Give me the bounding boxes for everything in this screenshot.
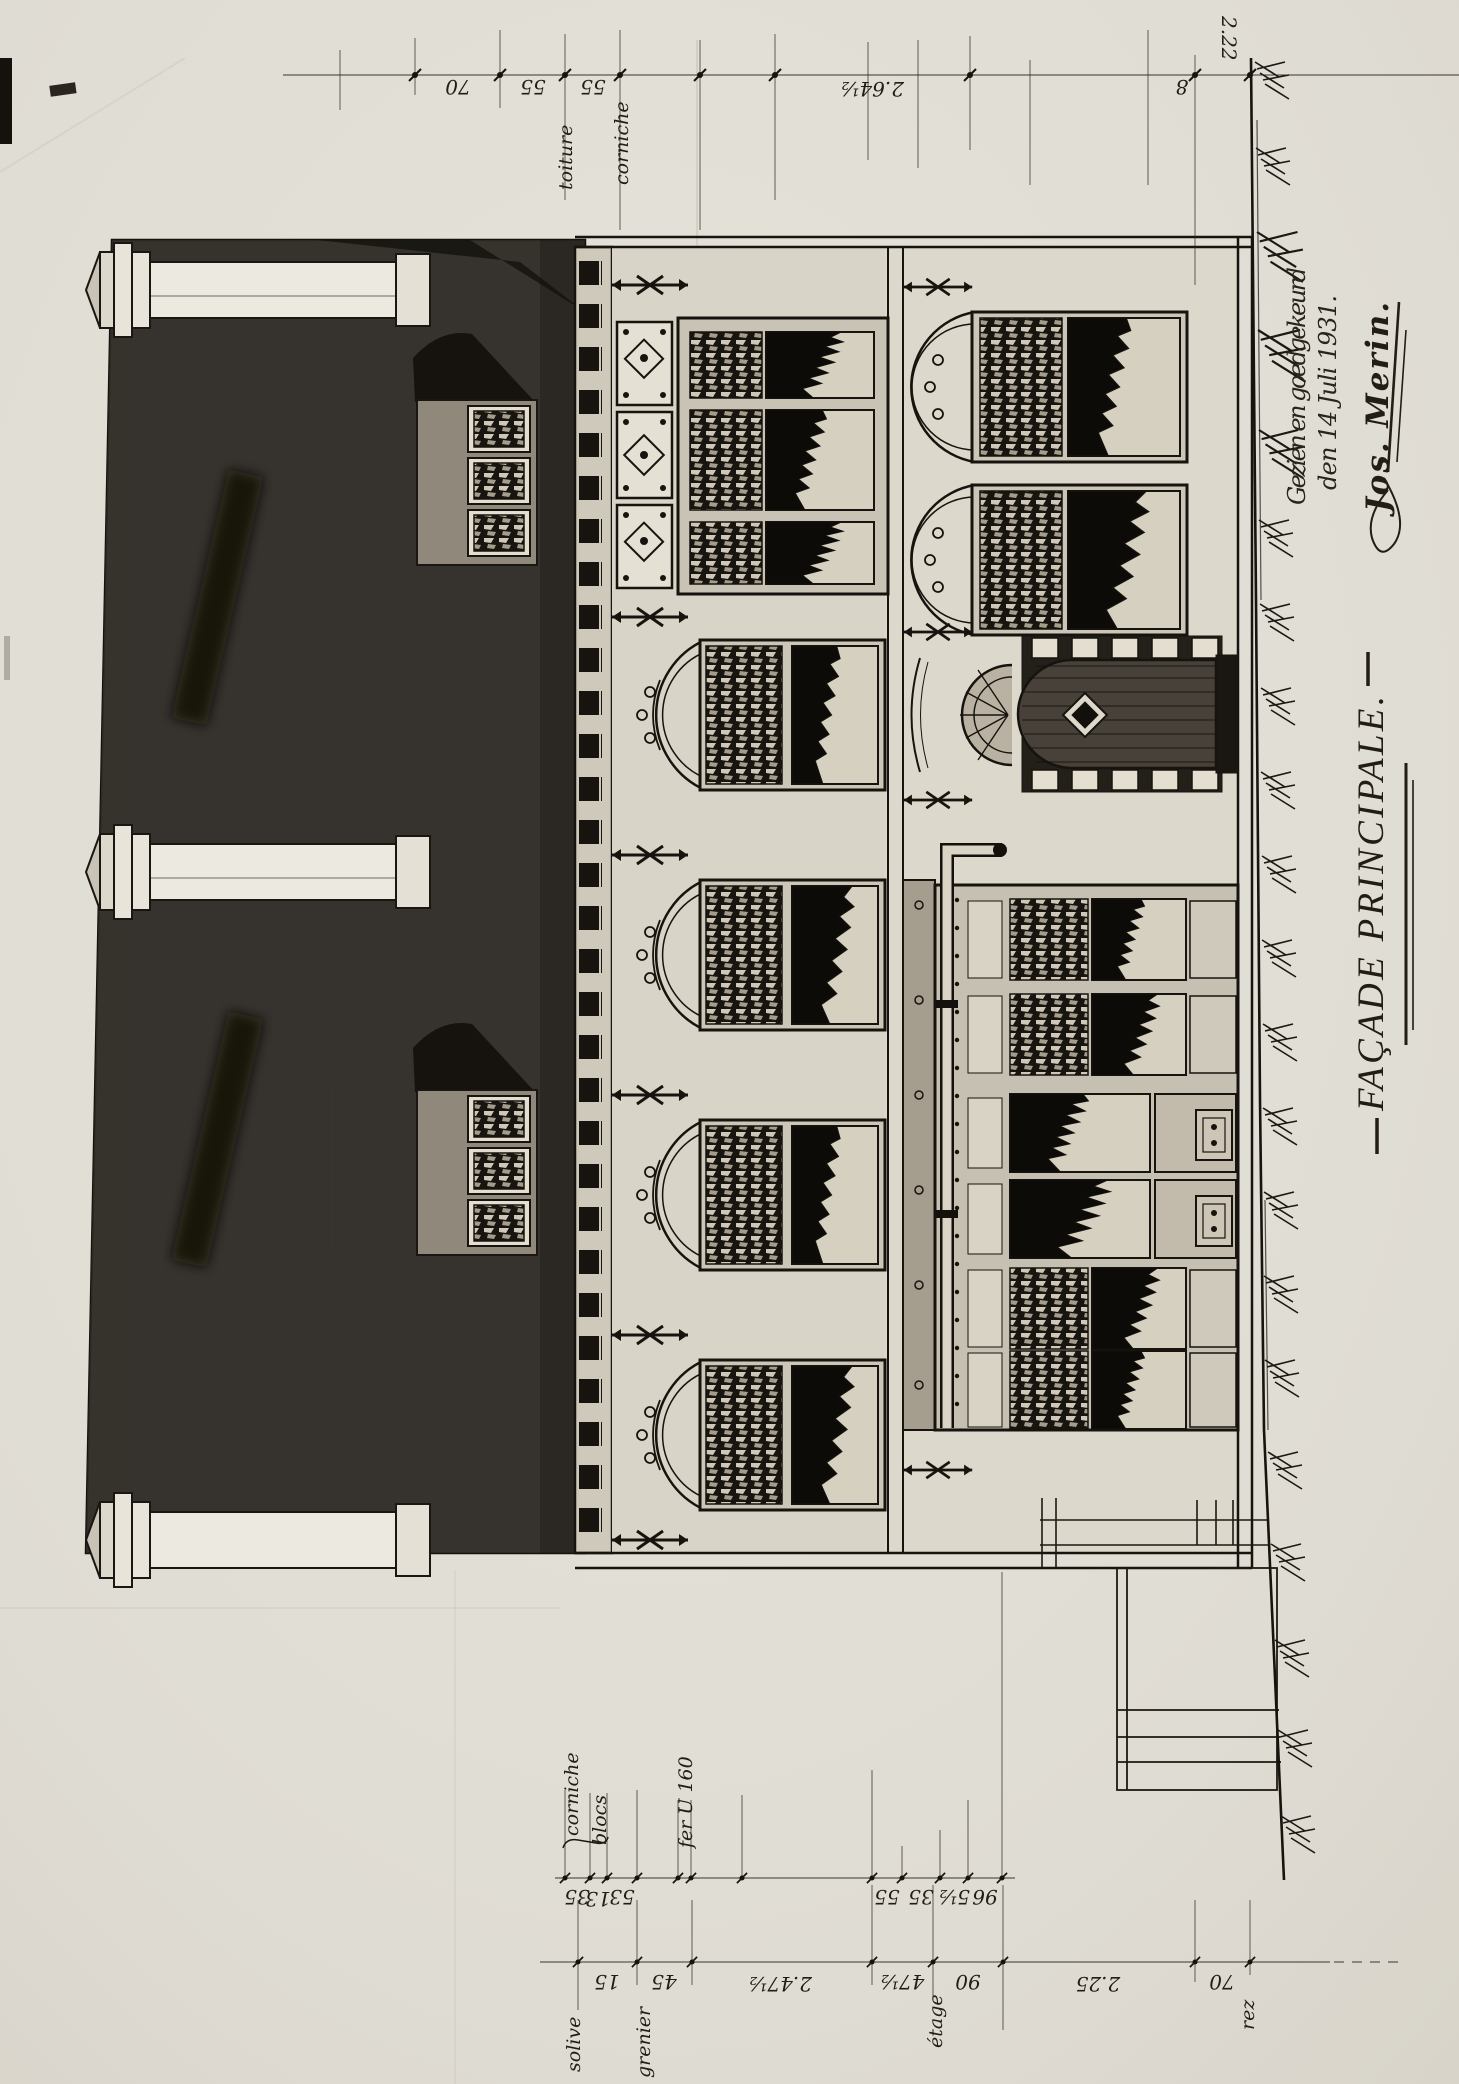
dim-upper-96: 96 bbox=[972, 1885, 998, 1909]
dim-lower-247: 2.47½ bbox=[748, 1972, 813, 1996]
approval-line-1: Gezien en goedgekeurd bbox=[1283, 267, 1311, 505]
dim-upper-5h: 5½ bbox=[938, 1885, 970, 1909]
label-blocs: blocs bbox=[589, 1795, 611, 1845]
facade-elevation-photo: 70 55 55 2.64½ 8 2.22 toiture corniche 3… bbox=[0, 0, 1459, 2084]
dim-lower-45: 45 bbox=[651, 1970, 677, 1994]
dim-lower-70: 70 bbox=[1209, 1970, 1235, 1994]
dim-top-222: 2.22 bbox=[1217, 15, 1241, 61]
shopfront-beam bbox=[903, 880, 935, 1430]
dim-lower-225: 2.25 bbox=[1076, 1972, 1122, 1996]
title-facade-principale: FAÇADE PRINCIPALE. bbox=[1351, 691, 1392, 1112]
label-corniche: corniche bbox=[561, 1752, 583, 1836]
dim-lower-90: 90 bbox=[955, 1970, 981, 1994]
label-solive: solive bbox=[563, 2017, 585, 2072]
dim-top-55b: 55 bbox=[580, 75, 605, 99]
label-grenier: grenier bbox=[633, 2005, 655, 2078]
carved-panels bbox=[617, 322, 672, 588]
label-etage: étage bbox=[925, 1994, 947, 2048]
dim-top-264: 2.64½ bbox=[840, 77, 905, 101]
label-toiture: toiture bbox=[555, 125, 577, 190]
dim-top-70: 70 bbox=[445, 75, 471, 99]
dim-upper-13: 13 bbox=[585, 1887, 610, 1911]
dim-upper-55: 55 bbox=[874, 1885, 899, 1909]
dim-top-55a: 55 bbox=[520, 75, 545, 99]
etage-window-1 bbox=[617, 318, 888, 594]
approval-signature: Jos. Merin. bbox=[1360, 302, 1396, 517]
label-corniche-top: corniche bbox=[611, 101, 633, 185]
label-rez: rez bbox=[1237, 1999, 1259, 2030]
approval-line-2: den 14 Juli 1931. bbox=[1314, 295, 1342, 490]
dim-lower-47h: 47½ bbox=[880, 1970, 926, 1994]
dim-top-8: 8 bbox=[1176, 75, 1189, 99]
building-elevation bbox=[80, 235, 1270, 1587]
dim-lower-15: 15 bbox=[594, 1970, 619, 1994]
photographed-architectural-drawing: 70 55 55 2.64½ 8 2.22 toiture corniche 3… bbox=[0, 0, 1459, 2084]
cornice-dentil-band bbox=[575, 247, 612, 1553]
dim-upper-53: 53 bbox=[609, 1885, 634, 1909]
label-fer-u-160: fer U 160 bbox=[675, 1756, 697, 1850]
dim-upper-35b: 35 bbox=[908, 1885, 933, 1909]
